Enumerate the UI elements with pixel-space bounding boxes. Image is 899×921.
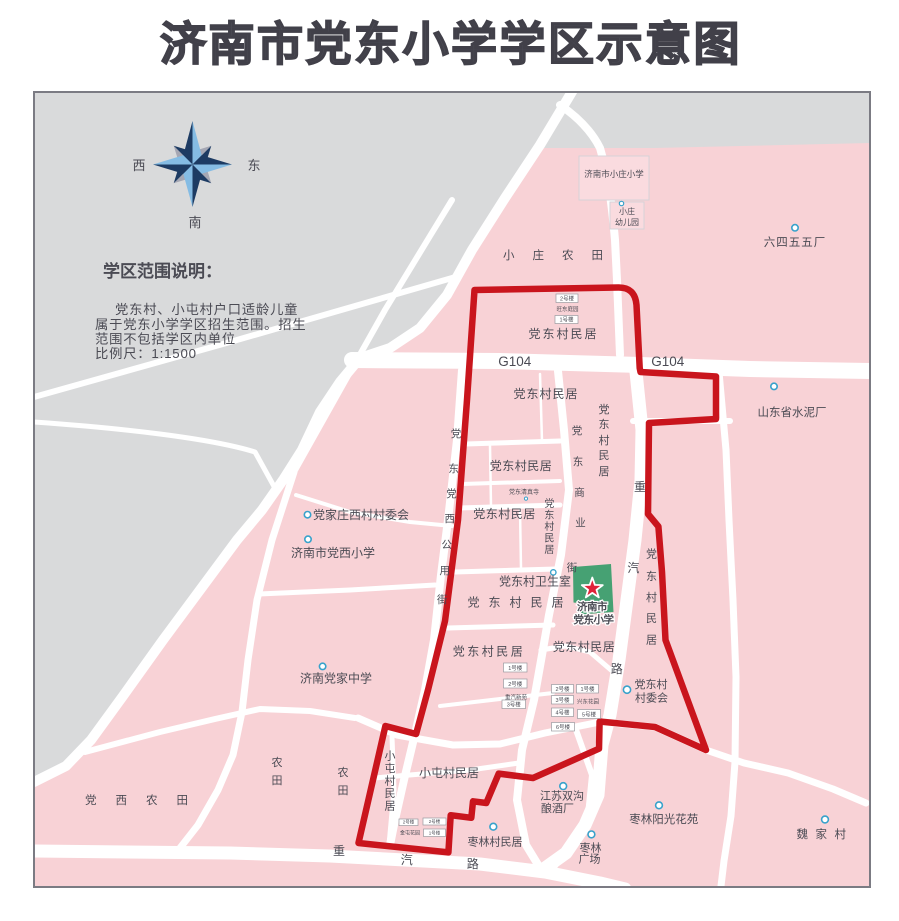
svg-text:党东清真寺: 党东清真寺	[509, 488, 539, 496]
svg-text:南: 南	[188, 215, 201, 230]
svg-text:小庄农田: 小庄农田	[503, 248, 621, 262]
svg-text:党东村民居: 党东村民居	[453, 644, 526, 659]
svg-text:党东村民居: 党东村民居	[473, 506, 536, 521]
svg-text:汽: 汽	[401, 852, 413, 867]
svg-text:3号楼: 3号楼	[507, 701, 522, 709]
svg-text:G104: G104	[498, 354, 532, 369]
svg-text:兴东花园: 兴东花园	[577, 698, 600, 706]
svg-text:2号楼: 2号楼	[560, 295, 575, 303]
svg-text:小屯村民居: 小屯村民居	[419, 766, 479, 780]
svg-text:小庄: 小庄	[619, 206, 635, 216]
svg-text:魏家村: 魏家村	[797, 827, 854, 841]
svg-text:济南市党东小学学区示意图: 济南市党东小学学区示意图	[160, 18, 742, 70]
svg-text:党东村民居: 党东村民居	[467, 595, 572, 610]
svg-text:6号楼: 6号楼	[556, 723, 571, 731]
svg-text:党东村民居: 党东村民居	[599, 403, 610, 478]
svg-text:枣林: 枣林	[580, 841, 602, 855]
svg-text:西: 西	[132, 158, 145, 173]
svg-text:2号楼: 2号楼	[429, 818, 441, 825]
svg-text:旺东庭园: 旺东庭园	[556, 305, 579, 313]
svg-text:1号楼: 1号楼	[580, 685, 595, 693]
svg-text:党东村卫生室: 党东村卫生室	[499, 574, 571, 589]
svg-text:党东小学: 党东小学	[574, 613, 615, 626]
svg-text:金屯花园: 金屯花园	[400, 830, 420, 837]
svg-text:党东村民居: 党东村民居	[528, 326, 598, 341]
svg-text:济南市小庄小学: 济南市小庄小学	[584, 169, 644, 179]
svg-text:济南市: 济南市	[577, 600, 608, 613]
svg-text:3号楼: 3号楼	[555, 696, 570, 704]
svg-text:1号楼: 1号楼	[559, 316, 574, 324]
svg-text:2号楼: 2号楼	[508, 680, 523, 688]
svg-text:2号楼: 2号楼	[403, 819, 415, 826]
svg-text:1号楼: 1号楼	[508, 664, 523, 672]
svg-text:东: 东	[247, 158, 260, 173]
svg-text:六四五五厂: 六四五五厂	[764, 236, 827, 249]
svg-text:枣林村民居: 枣林村民居	[468, 835, 523, 849]
svg-text:重: 重	[333, 844, 345, 858]
svg-text:党东村民居: 党东村民居	[513, 386, 578, 401]
svg-text:小屯村民居: 小屯村民居	[385, 750, 396, 813]
svg-text:党东村: 党东村	[635, 677, 668, 691]
svg-text:G104: G104	[651, 354, 685, 369]
svg-text:幼儿园: 幼儿园	[615, 217, 639, 227]
svg-text:党西农田: 党西农田	[85, 793, 207, 807]
svg-text:党家庄西村村委会: 党家庄西村村委会	[313, 507, 409, 522]
svg-text:酿酒厂: 酿酒厂	[541, 801, 574, 815]
svg-text:山东省水泥厂: 山东省水泥厂	[758, 406, 827, 419]
svg-text:枣林阳光花苑: 枣林阳光花苑	[629, 812, 698, 826]
svg-text:济南党家中学: 济南党家中学	[300, 671, 372, 686]
svg-text:5号楼: 5号楼	[582, 711, 597, 719]
svg-text:党东村民居: 党东村民居	[544, 497, 554, 556]
svg-text:广场: 广场	[579, 852, 601, 866]
svg-text:党东村民居: 党东村民居	[490, 458, 553, 473]
svg-text:村委会: 村委会	[635, 691, 668, 705]
svg-text:路: 路	[467, 856, 479, 871]
svg-text:济南市党西小学: 济南市党西小学	[291, 545, 375, 560]
svg-text:4号楼: 4号楼	[555, 709, 570, 717]
svg-text:学区范围说明：: 学区范围说明：	[103, 261, 222, 281]
svg-text:江苏双沟: 江苏双沟	[540, 790, 584, 803]
svg-text:党东村民居: 党东村民居	[553, 639, 616, 654]
svg-text:2号楼: 2号楼	[555, 685, 570, 693]
svg-text:1号楼: 1号楼	[429, 830, 441, 837]
